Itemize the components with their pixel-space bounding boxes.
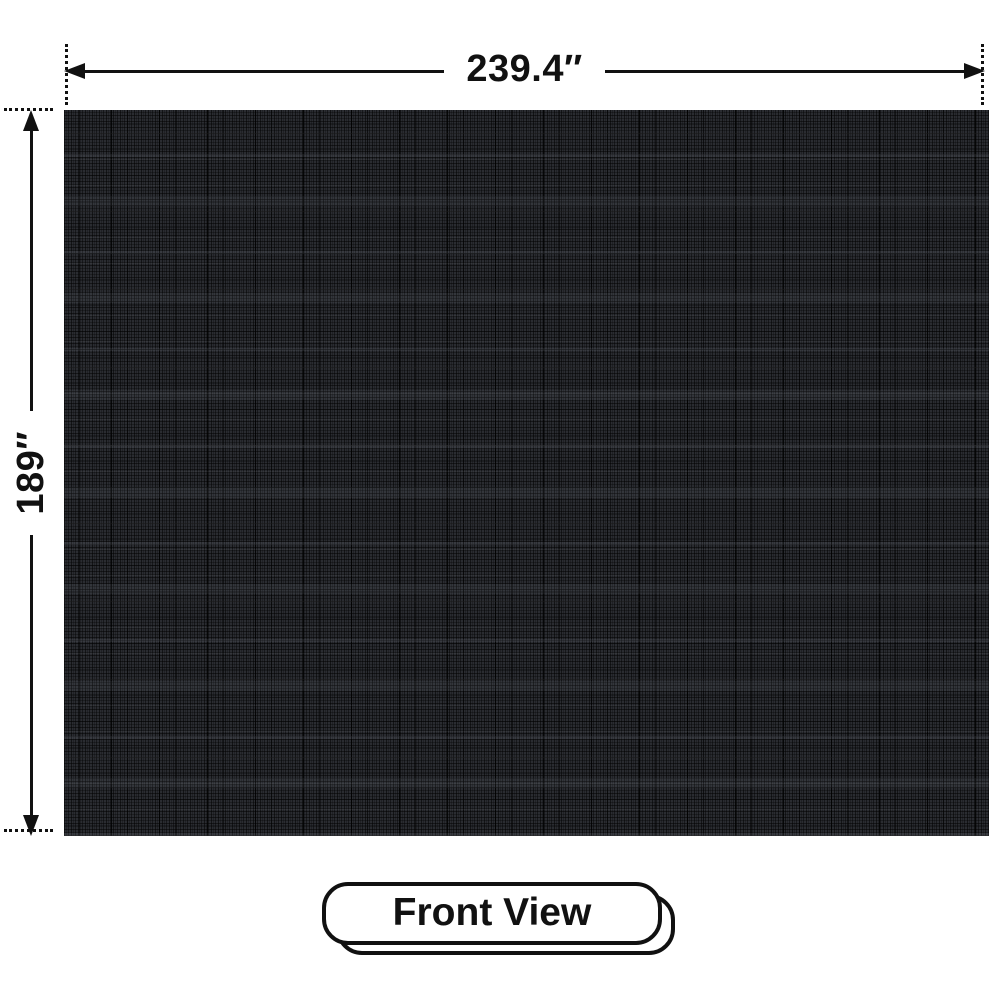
dimension-line-upper-segment — [30, 131, 33, 411]
extension-line-top-right — [981, 44, 984, 105]
extension-line-left-top — [4, 108, 53, 111]
extension-line-left-bottom — [4, 829, 53, 832]
dimension-line-left-segment — [85, 70, 444, 73]
height-dimension-label: 189″ — [12, 431, 50, 515]
extension-line-top-left — [65, 44, 68, 105]
view-label-card: Front View — [322, 882, 662, 945]
led-panel-front-face — [64, 110, 989, 836]
dimension-line-right-segment — [605, 70, 964, 73]
width-dimension: 239.4″ — [64, 54, 985, 88]
view-label-text: Front View — [393, 893, 592, 935]
height-dimension: 189″ — [12, 110, 50, 836]
dimension-diagram: 239.4″ 189″ Front View — [0, 0, 1000, 1000]
width-dimension-label: 239.4″ — [466, 50, 582, 92]
dimension-line-lower-segment — [30, 535, 33, 815]
arrowhead-up-icon — [23, 110, 39, 131]
arrowhead-down-icon — [23, 815, 39, 836]
